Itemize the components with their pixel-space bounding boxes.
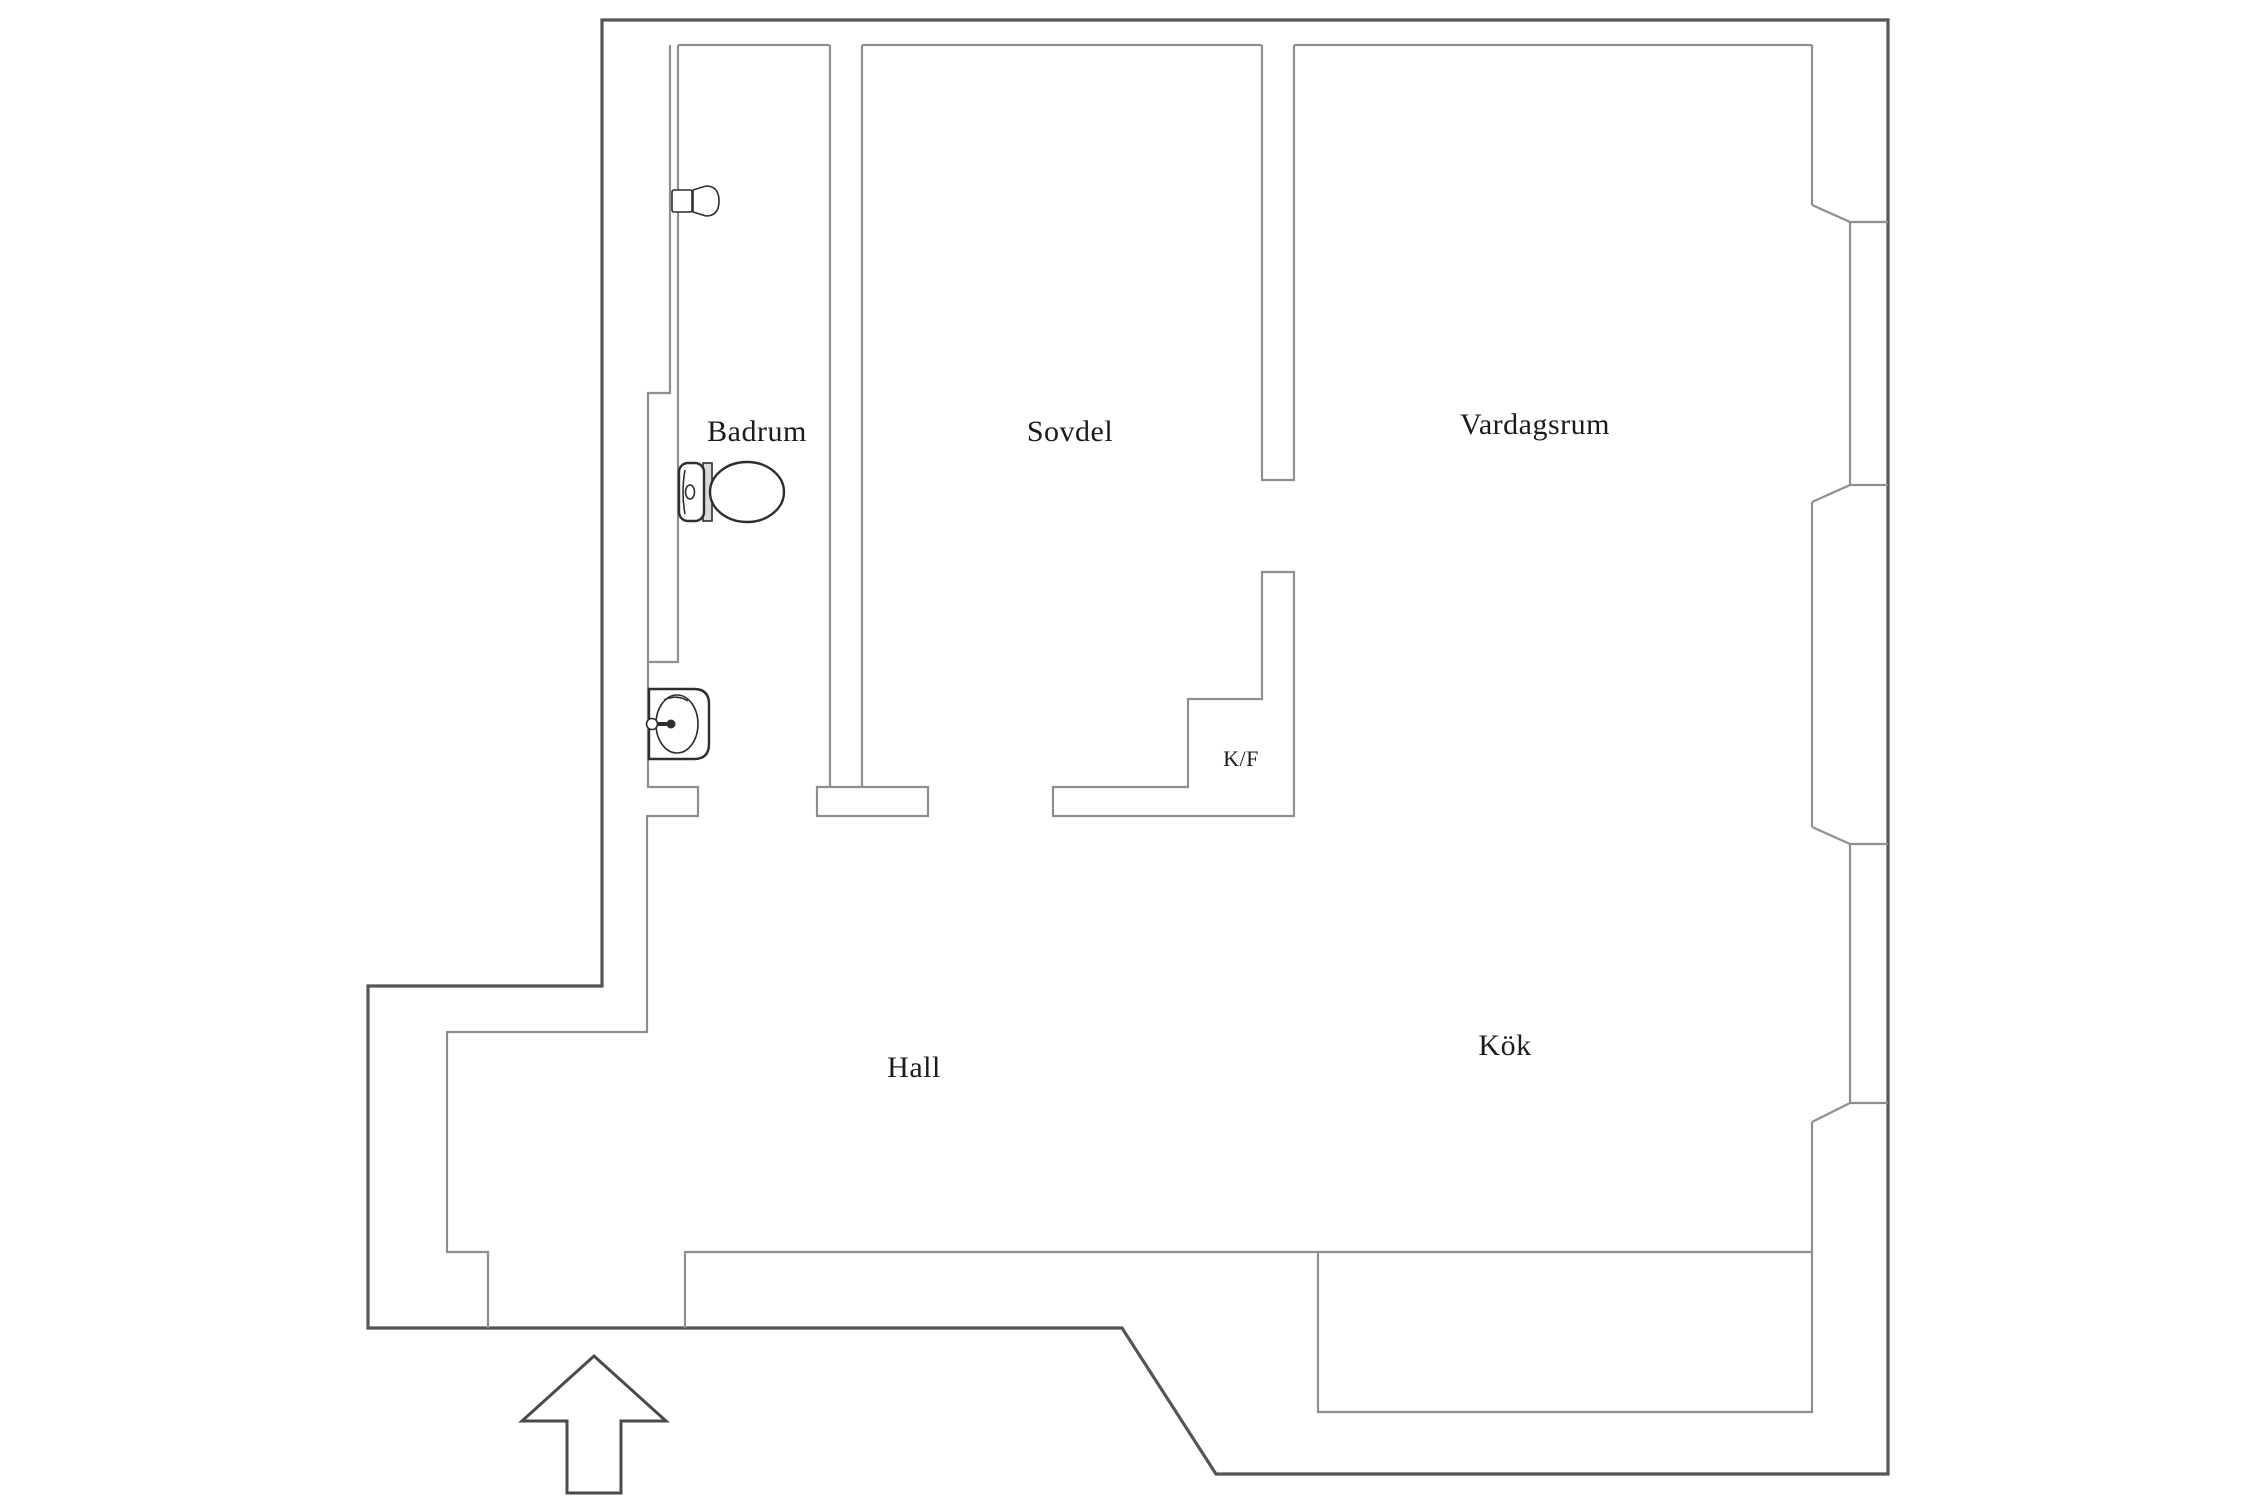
room-label-vardagsrum: Vardagsrum xyxy=(1460,408,1610,441)
entrance-arrow-icon xyxy=(522,1356,666,1493)
wall-badrum-east xyxy=(830,45,862,787)
room-label-kok: Kök xyxy=(1478,1029,1531,1062)
room-label-badrum: Badrum xyxy=(707,415,807,448)
wall-kf-compartment xyxy=(1053,572,1294,816)
outer-wall xyxy=(368,20,1888,1474)
room-label-hall: Hall xyxy=(887,1051,941,1084)
window-kok xyxy=(1812,827,1888,1122)
window-vardagsrum xyxy=(1812,205,1888,502)
sink-icon xyxy=(647,689,710,759)
room-label-sovdel: Sovdel xyxy=(1027,415,1113,448)
wall-sovdel-vardagsrum xyxy=(1262,45,1294,480)
toilet-icon xyxy=(679,462,784,522)
wall-bottom-inner xyxy=(685,1252,1318,1328)
door-cap-badrum xyxy=(817,787,928,816)
floor-plan-canvas: Badrum Sovdel Vardagsrum K/F Hall Kök xyxy=(0,0,2250,1500)
wall-badrum-west xyxy=(648,45,678,662)
room-label-kf: K/F xyxy=(1223,746,1259,771)
shower-holder-icon xyxy=(672,186,719,216)
wall-hall-west-inner xyxy=(447,662,698,1328)
floor-plan-page: Badrum Sovdel Vardagsrum K/F Hall Kök xyxy=(0,0,2250,1500)
bathroom-fixtures xyxy=(647,186,785,759)
kitchen-counter xyxy=(1318,1252,1812,1412)
